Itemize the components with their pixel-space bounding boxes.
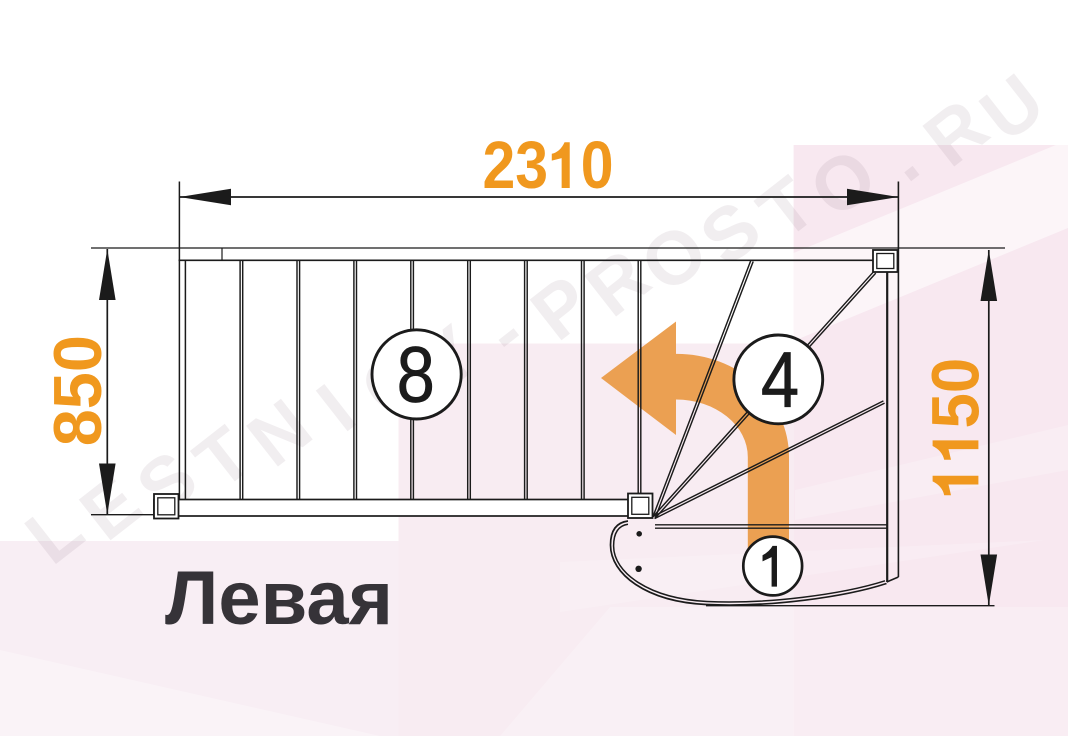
svg-text:50: 50	[918, 358, 993, 429]
svg-text:8: 8	[397, 330, 435, 419]
svg-text:850: 850	[40, 335, 116, 446]
svg-text:Левая: Левая	[165, 556, 393, 641]
svg-text:23: 23	[482, 129, 548, 203]
svg-text:4: 4	[761, 336, 799, 425]
svg-text:0: 0	[581, 129, 614, 203]
